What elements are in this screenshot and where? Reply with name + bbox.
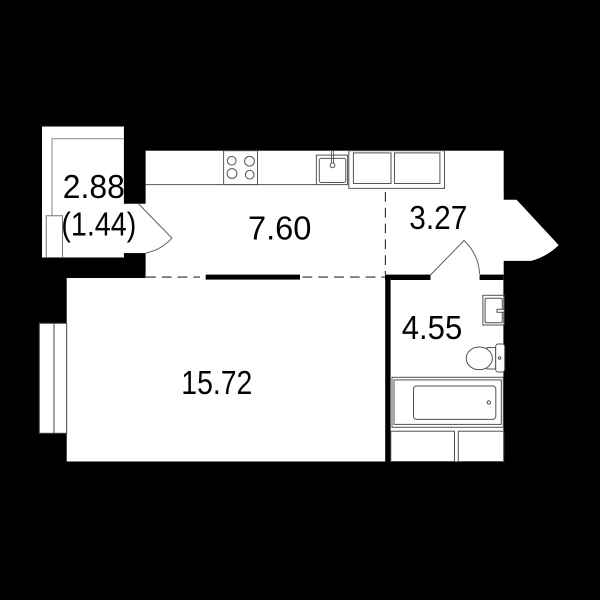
svg-text:15.72: 15.72 (181, 365, 252, 402)
svg-text:(1.44): (1.44) (61, 207, 136, 244)
svg-text:3.27: 3.27 (409, 200, 467, 237)
svg-text:7.60: 7.60 (248, 210, 312, 247)
svg-text:4.55: 4.55 (402, 310, 463, 347)
svg-text:2.88: 2.88 (63, 169, 125, 206)
